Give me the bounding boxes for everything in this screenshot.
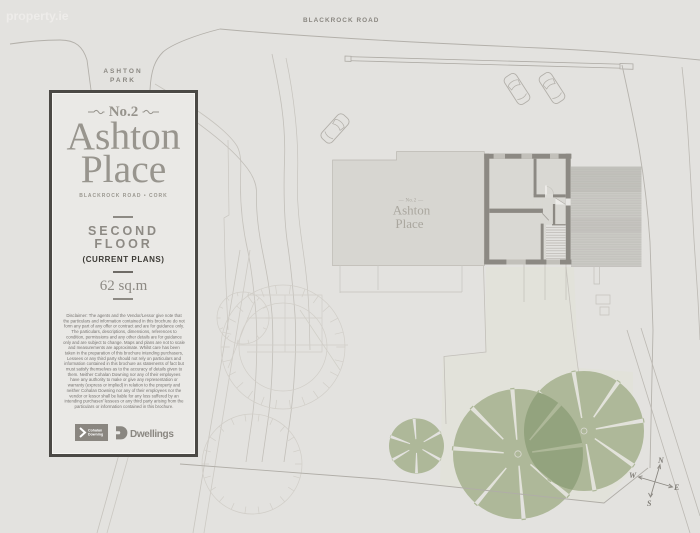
svg-text:ASHTON: ASHTON bbox=[103, 68, 142, 75]
svg-text:W: W bbox=[629, 471, 637, 480]
svg-text:Downing: Downing bbox=[88, 433, 103, 437]
svg-text:Place: Place bbox=[395, 216, 423, 231]
svg-text:BLACKROCK ROAD: BLACKROCK ROAD bbox=[303, 17, 379, 24]
svg-text:E: E bbox=[673, 483, 679, 492]
svg-text:property.ie: property.ie bbox=[6, 9, 69, 23]
svg-text:PARK: PARK bbox=[110, 77, 136, 84]
svg-text:Dwellings: Dwellings bbox=[130, 429, 174, 440]
svg-text:S: S bbox=[647, 499, 652, 508]
